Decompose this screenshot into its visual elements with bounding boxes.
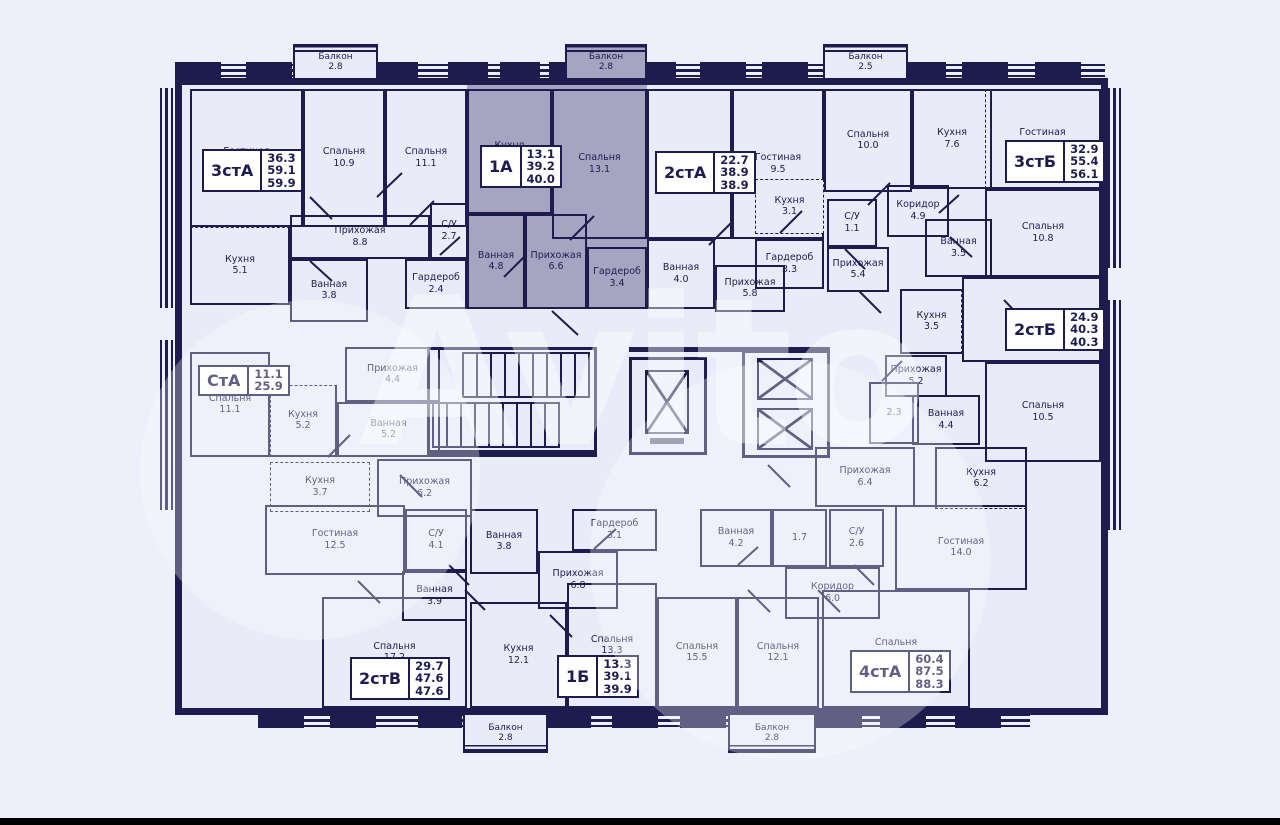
room-hall-5-8: Прихожая5.8 [715, 265, 785, 312]
room-name: Ванная [478, 251, 514, 261]
balcony-bottom-left: Балкон 2.8 [463, 713, 548, 753]
room-area: 2.7 [441, 232, 456, 242]
balcony-name: Балкон [589, 52, 623, 62]
wall-pier [448, 62, 488, 78]
room-area: 4.4 [385, 375, 400, 385]
room-name: Гардероб [412, 273, 460, 283]
wall-pier [500, 62, 540, 78]
elevator-icon [645, 370, 689, 434]
unit-total-area: 40.0 [527, 173, 555, 185]
elevator-shaft-left [629, 357, 707, 455]
room-hall-5-4: Прихожая5.4 [827, 247, 889, 292]
room-area: 10.0 [857, 141, 878, 151]
unit-code: 2стВ [352, 659, 410, 698]
room-bath-4-8: Ванная4.8 [467, 214, 525, 309]
room-name: Спальня [578, 153, 620, 163]
room-name: Спальня [1022, 401, 1064, 411]
room-name: Ванная [370, 419, 406, 429]
unit-total-area: 47.6 [415, 685, 443, 697]
room-area: 1.7 [792, 533, 807, 543]
room-wc-2-7: С/У2.7 [430, 203, 468, 259]
room-area: 10.8 [1032, 234, 1053, 244]
room-name: Спальня [405, 147, 447, 157]
wall-pier [955, 712, 1001, 728]
room-name: Гостиная [1019, 128, 1065, 138]
balcony-window [295, 46, 376, 52]
room-kitchen-7-6: Кухня7.6 [912, 89, 992, 189]
room-name: Спальня [1022, 222, 1064, 232]
room-name: Прихожая [891, 365, 942, 375]
unit-total-area: 39.9 [603, 683, 631, 695]
room-name: Прихожая [531, 251, 582, 261]
unit-total-area: 25.9 [254, 380, 282, 392]
room-area: 6.2 [973, 479, 988, 489]
unit-code: 2стА [657, 153, 715, 192]
elevator-shaft-right [742, 350, 830, 458]
room-area: 5.2 [295, 421, 310, 431]
balcony-name: Балкон [318, 52, 352, 62]
unit-area: 39.2 [527, 160, 555, 172]
wall-pier [545, 712, 591, 728]
room-area: 12.1 [508, 656, 529, 666]
room-ward-3-4: Гардероб3.4 [587, 247, 647, 309]
unit-label-4sta: 4стА 60.487.588.3 [850, 650, 951, 693]
room-name: С/У [441, 220, 457, 230]
room-bed-10-0: Спальня10.0 [824, 89, 912, 192]
room-area: 6.2 [417, 489, 432, 499]
balcony-window [567, 46, 645, 52]
room-area: 15.5 [686, 653, 707, 663]
elevator-icon [757, 408, 813, 450]
room-name: Спальня [591, 635, 633, 645]
wall-pier [246, 62, 292, 78]
room-area: 9.5 [770, 165, 785, 175]
wall-pier [816, 712, 862, 728]
room-area: 5.8 [742, 289, 757, 299]
room-area: 2.3 [886, 408, 901, 418]
room-area: 3.1 [607, 531, 622, 541]
room-name: Коридор [896, 200, 939, 210]
unit-label-2sta: 2стА 22.738.938.9 [655, 151, 756, 194]
room-living-14-0: Гостиная14.0 [895, 505, 1027, 590]
wall-pier [372, 62, 418, 78]
wall-pier [612, 712, 658, 728]
room-name: Кухня [917, 311, 947, 321]
balcony-area: 2.8 [599, 62, 613, 72]
unit-total-area: 59.9 [267, 177, 295, 189]
room-name: Ванная [940, 237, 976, 247]
room-name: Кухня [937, 128, 967, 138]
room-wc-4-1: С/У4.1 [405, 509, 467, 571]
room-kitchen-3-1: Кухня3.1 [755, 179, 824, 234]
balcony-name: Балкон [488, 723, 522, 733]
room-bath-4-2: Ванная4.2 [700, 509, 772, 567]
room-area: 4.1 [428, 541, 443, 551]
room-area: 6.6 [548, 262, 563, 272]
room-area: 2.4 [428, 285, 443, 295]
room-area: 3.5 [951, 249, 966, 259]
room-area: 1.1 [844, 224, 859, 234]
bottom-black-strip [0, 818, 1280, 825]
room-area: 5.2 [381, 430, 396, 440]
room-hall-4-4: Прихожая4.4 [345, 347, 440, 402]
room-hall-8-8: Прихожая8.8 [290, 215, 430, 259]
room-name: Ванная [928, 409, 964, 419]
room-area: 6.4 [857, 478, 872, 488]
building-outline: Гостиная14.3 Спальня10.9 Спальня11.1 Кух… [175, 78, 1108, 715]
room-wc-2-6: С/У2.6 [829, 509, 884, 567]
balcony-area: 2.5 [858, 62, 872, 72]
unit-label-3sta: 3стА 36.359.159.9 [202, 149, 303, 192]
balcony-top-left: Балкон 2.8 [293, 44, 378, 80]
room-name: Ванная [416, 585, 452, 595]
elevator-sill [650, 438, 684, 444]
unit-code: 3стБ [1007, 142, 1065, 181]
unit-area: 40.3 [1070, 323, 1098, 335]
room-name: Кухня [775, 196, 805, 206]
balcony-name: Балкон [755, 723, 789, 733]
core-wall [427, 451, 597, 457]
unit-label-1a: 1А 13.139.240.0 [480, 145, 562, 188]
stair-flight-lower [432, 402, 560, 448]
unit-label-2stb: 2стБ 24.940.340.3 [1005, 308, 1105, 351]
wall-pier [258, 712, 304, 728]
room-name: Гостиная [938, 537, 984, 547]
unit-label-3stb: 3стБ 32.955.456.1 [1005, 140, 1105, 183]
room-name: С/У [844, 212, 860, 222]
room-area: 3.1 [782, 207, 797, 217]
room-bed-15-5: Спальня15.5 [657, 597, 737, 708]
wall-pier [962, 62, 1008, 78]
room-bed-10-9: Спальня10.9 [303, 89, 385, 227]
room-area: 14.0 [950, 548, 971, 558]
room-name: Прихожая [399, 477, 450, 487]
balcony-top-mid: Балкон 2.8 [565, 44, 647, 80]
room-bath-4-0: Ванная4.0 [647, 239, 715, 309]
room-area: 5.4 [850, 270, 865, 280]
room-wc-1-1: С/У1.1 [827, 199, 877, 247]
room-kitchen-3-5: Кухня3.5 [900, 289, 962, 354]
room-area: 3.8 [321, 291, 336, 301]
room-area: 4.0 [673, 275, 688, 285]
wall-pier [880, 712, 926, 728]
unit-total-area: 40.3 [1070, 336, 1098, 348]
unit-label-1b: 1Б 13.339.139.9 [557, 655, 639, 698]
unit-code: 1А [482, 147, 522, 186]
stairs-icon [427, 347, 597, 453]
room-name: Гардероб [591, 519, 639, 529]
window-hatch-right-1 [1108, 88, 1121, 268]
room-name: Спальня [875, 638, 917, 648]
room-living-12-5: Гостиная12.5 [265, 505, 405, 575]
room-area: 11.1 [415, 159, 436, 169]
room-area: 12.5 [324, 541, 345, 551]
wall-pier [418, 712, 462, 728]
window-hatch-left-2 [160, 340, 173, 510]
room-name: Спальня [676, 642, 718, 652]
room-area: 3.8 [496, 542, 511, 552]
unit-code: 1Б [559, 657, 598, 696]
room-area: 2.6 [849, 539, 864, 549]
room-name: Прихожая [833, 259, 884, 269]
balcony-area: 2.8 [765, 733, 779, 743]
balcony-name: Балкон [848, 52, 882, 62]
wall-pier [175, 62, 221, 78]
elevator-icon [757, 358, 813, 400]
room-area: 5.1 [232, 266, 247, 276]
room-area: 4.2 [728, 539, 743, 549]
room-ward-3-1: Гардероб3.1 [572, 509, 657, 551]
balcony-area: 2.8 [328, 62, 342, 72]
unit-code: СтА [200, 367, 249, 394]
room-name: Кухня [966, 468, 996, 478]
room-name: Гардероб [593, 267, 641, 277]
room-name: Прихожая [725, 278, 776, 288]
unit-area: 39.1 [603, 670, 631, 682]
room-name: Гардероб [766, 253, 814, 263]
room-area: 7.6 [944, 140, 959, 150]
room-kitchen-5-1: Кухня5.1 [190, 227, 290, 305]
room-bath-3-8b: Ванная3.8 [470, 509, 538, 574]
room-area: 4.9 [910, 212, 925, 222]
room-1-7: 1.7 [772, 509, 827, 567]
unit-label-2stv: 2стВ 29.747.647.6 [350, 657, 450, 700]
wall-pier [762, 62, 808, 78]
room-ward-2-4: Гардероб2.4 [405, 259, 467, 309]
floor-plan-page: Балкон 2.8 Балкон 2.8 Балкон 2.5 Балкон … [0, 0, 1280, 825]
room-area: 13.1 [589, 165, 610, 175]
room-area: 12.1 [767, 653, 788, 663]
room-name: Кухня [305, 476, 335, 486]
room-area: 3.5 [924, 322, 939, 332]
balcony-area: 2.8 [498, 733, 512, 743]
room-name: Гостиная [755, 153, 801, 163]
room-name: С/У [849, 527, 865, 537]
unit-code: 4стА [852, 652, 910, 691]
unit-area: 55.4 [1070, 155, 1098, 167]
stair-flight-upper [462, 352, 590, 398]
room-bed-10-8: Спальня10.8 [985, 189, 1101, 277]
room-area: 3.4 [609, 279, 624, 289]
unit-area: 59.1 [267, 164, 295, 176]
room-name: Кухня [288, 410, 318, 420]
wall-pier [700, 62, 746, 78]
room-name: Ванная [718, 527, 754, 537]
room-name: Прихожая [367, 364, 418, 374]
room-name: Гостиная [312, 529, 358, 539]
room-name: Ванная [311, 280, 347, 290]
window-hatch-left-1 [160, 88, 173, 308]
unit-area: 87.5 [915, 665, 943, 677]
room-area: 8.8 [352, 238, 367, 248]
room-name: Прихожая [553, 569, 604, 579]
unit-area: 47.6 [415, 672, 443, 684]
room-name: Прихожая [335, 226, 386, 236]
wall-pier [330, 712, 376, 728]
room-bath-5-2: Ванная5.2 [337, 402, 440, 457]
room-name: Ванная [663, 263, 699, 273]
room-hall-6-4: Прихожая6.4 [815, 447, 915, 507]
balcony-window [465, 745, 546, 751]
room-bath-3-8: Ванная3.8 [290, 259, 368, 322]
unit-code: 2стБ [1007, 310, 1065, 349]
unit-total-area: 38.9 [720, 179, 748, 191]
room-2-3: 2.3 [869, 382, 919, 444]
room-name: Спальня [847, 130, 889, 140]
balcony-top-right: Балкон 2.5 [823, 44, 908, 80]
core-wall [629, 347, 830, 352]
room-bath-4-4: Ванная4.4 [912, 395, 980, 445]
room-bath-3-5: Ванная3.5 [925, 219, 992, 277]
room-name: Ванная [486, 531, 522, 541]
room-name: Прихожая [840, 466, 891, 476]
room-name: Спальня [323, 147, 365, 157]
room-area: 4.4 [938, 421, 953, 431]
room-area: 11.1 [219, 405, 240, 415]
unit-code: 3стА [204, 151, 262, 190]
balcony-window [730, 745, 814, 751]
unit-area: 38.9 [720, 166, 748, 178]
unit-total-area: 56.1 [1070, 168, 1098, 180]
wall-pier [680, 712, 726, 728]
room-name: С/У [428, 529, 444, 539]
room-area: 3.7 [312, 488, 327, 498]
room-name: Спальня [757, 642, 799, 652]
room-hall-6-6: Прихожая6.6 [525, 214, 587, 309]
room-name: Кухня [225, 255, 255, 265]
room-area: 4.8 [488, 262, 503, 272]
room-kitchen-6-2: Кухня6.2 [935, 447, 1027, 509]
unit-label-sta: СтА 11.125.9 [198, 365, 290, 396]
window-hatch-right-2 [1108, 300, 1121, 530]
balcony-bottom-right: Балкон 2.8 [728, 713, 816, 753]
room-area: 10.5 [1032, 413, 1053, 423]
balcony-window [825, 46, 906, 52]
room-name: Спальня [373, 642, 415, 652]
room-name: Кухня [504, 644, 534, 654]
unit-total-area: 88.3 [915, 678, 943, 690]
wall-pier [1035, 62, 1081, 78]
room-kitchen-12-1: Кухня12.1 [470, 602, 567, 708]
room-area: 10.9 [333, 159, 354, 169]
